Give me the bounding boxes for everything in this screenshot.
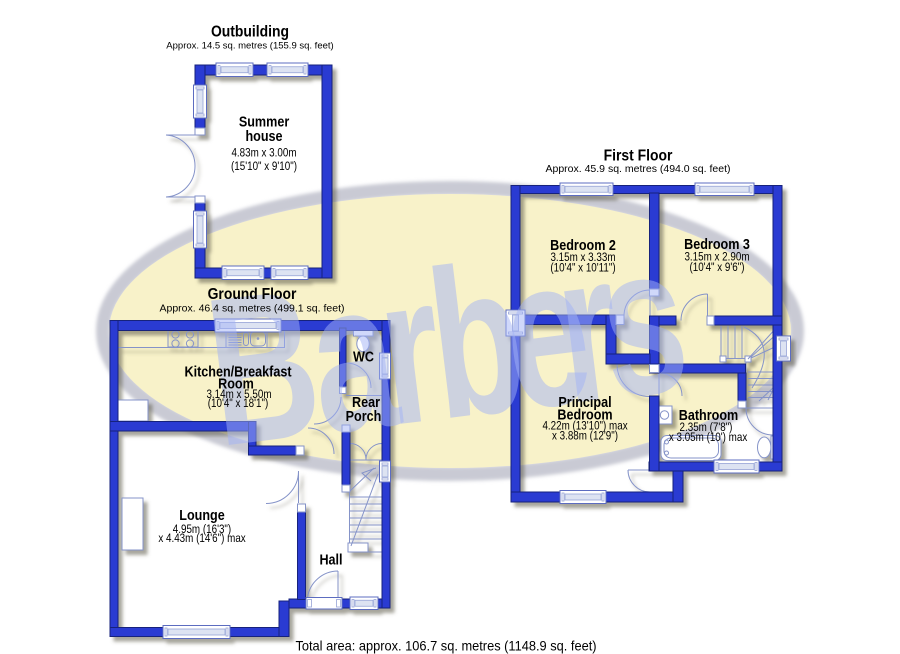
svg-text:x 3.05m (10') max: x 3.05m (10') max [669,431,748,444]
svg-text:Outbuilding: Outbuilding [211,23,289,41]
svg-text:x 4.43m (14'6") max: x 4.43m (14'6") max [158,532,246,545]
svg-text:Hall: Hall [319,550,342,567]
svg-text:4.83m x 3.00m: 4.83m x 3.00m [231,147,296,160]
svg-text:Ground Floor: Ground Floor [208,285,297,303]
svg-text:(10'4" x 18'1"): (10'4" x 18'1") [208,397,269,410]
svg-text:(15'10" x 9'10"): (15'10" x 9'10") [231,160,297,173]
svg-text:Approx. 46.4 sq. metres (499.1: Approx. 46.4 sq. metres (499.1 sq. feet) [159,303,344,315]
svg-text:house: house [245,127,282,144]
svg-text:(10'4" x 10'11"): (10'4" x 10'11") [550,262,615,275]
svg-text:(10'4" x 9'6"): (10'4" x 9'6") [689,261,744,274]
svg-text:Lounge: Lounge [179,506,225,523]
svg-text:Approx. 14.5 sq. metres (155.9: Approx. 14.5 sq. metres (155.9 sq. feet) [166,41,333,52]
svg-text:Total area: approx. 106.7 sq.: Total area: approx. 106.7 sq. metres (11… [295,638,596,653]
svg-text:Bedroom 3: Bedroom 3 [684,235,750,252]
svg-text:x 3.88m (12'9"): x 3.88m (12'9") [552,430,618,443]
svg-text:Approx. 45.9 sq. metres (494.0: Approx. 45.9 sq. metres (494.0 sq. feet) [545,163,730,175]
svg-text:WC: WC [353,347,374,364]
svg-text:Porch: Porch [346,407,382,424]
